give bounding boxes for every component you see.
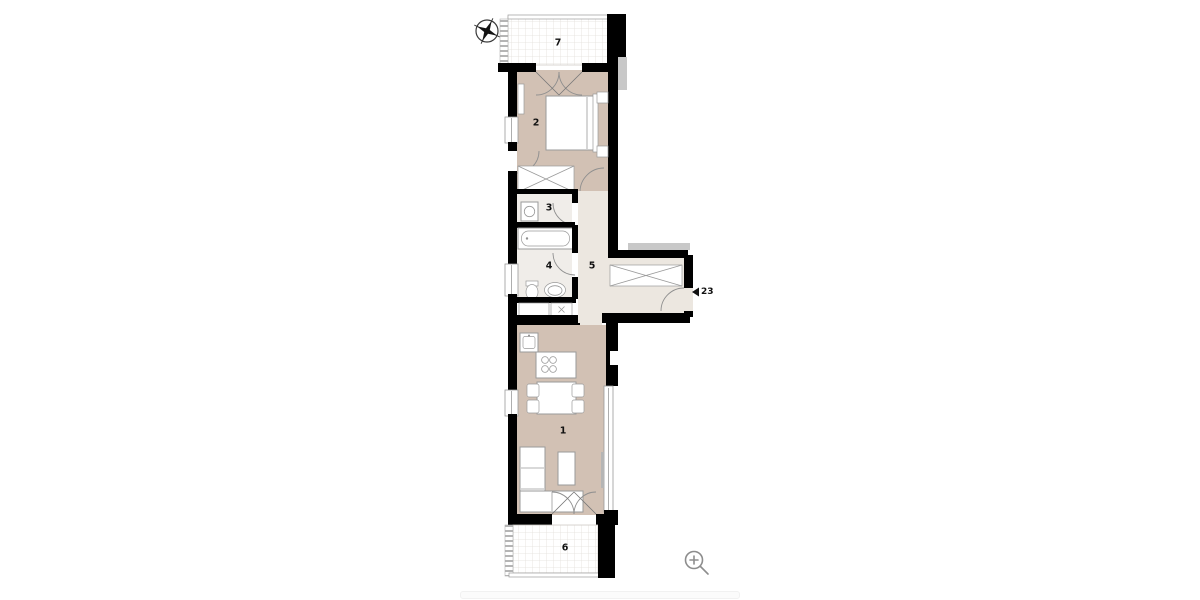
- dining-table: [537, 382, 576, 414]
- chair: [527, 384, 539, 397]
- coffee-table: [558, 452, 575, 485]
- chair: [572, 400, 584, 413]
- radiator: [518, 84, 524, 114]
- balcony-7: [500, 14, 626, 67]
- room-label-2: 2: [533, 118, 540, 129]
- kitchen-counter: [536, 352, 576, 378]
- kitchen-sink: [520, 333, 538, 352]
- room-label-1: 1: [560, 426, 567, 437]
- sink: [545, 283, 566, 298]
- wardrobe: [518, 166, 574, 192]
- entrance-unit-number: 23: [701, 287, 714, 297]
- floor-plan-drawing: [0, 0, 1200, 600]
- bedroom-2: [498, 57, 627, 193]
- chair: [572, 384, 584, 397]
- entrance-arrow-icon: [692, 288, 699, 297]
- room-label-5: 5: [589, 261, 596, 272]
- hall-wardrobe: [610, 265, 682, 286]
- railing: [505, 525, 513, 576]
- zoom-in-icon[interactable]: [686, 552, 709, 575]
- nightstand: [597, 92, 608, 103]
- window: [505, 390, 518, 416]
- chair: [527, 400, 539, 413]
- room-label-6: 6: [562, 543, 569, 554]
- nightstand: [597, 146, 608, 157]
- bathtub: [518, 228, 573, 249]
- window: [505, 264, 518, 296]
- floor-plan-canvas: 1 2 3 4 5 6 7 23: [0, 0, 1200, 600]
- railing: [500, 19, 508, 65]
- horizontal-scrollbar[interactable]: [460, 591, 740, 599]
- living-room-1: [505, 316, 619, 525]
- window: [604, 386, 613, 512]
- room-label-4: 4: [546, 261, 553, 272]
- utility-box: [519, 303, 549, 316]
- washing-machine: [521, 202, 538, 221]
- north-arrow-icon: [474, 18, 499, 43]
- room-label-7: 7: [555, 38, 562, 49]
- window-handle: [601, 452, 604, 488]
- shaft-box: [551, 303, 572, 316]
- window: [505, 117, 518, 143]
- balcony-6: [505, 524, 615, 578]
- room-label-3: 3: [546, 203, 553, 214]
- toilet: [526, 281, 538, 300]
